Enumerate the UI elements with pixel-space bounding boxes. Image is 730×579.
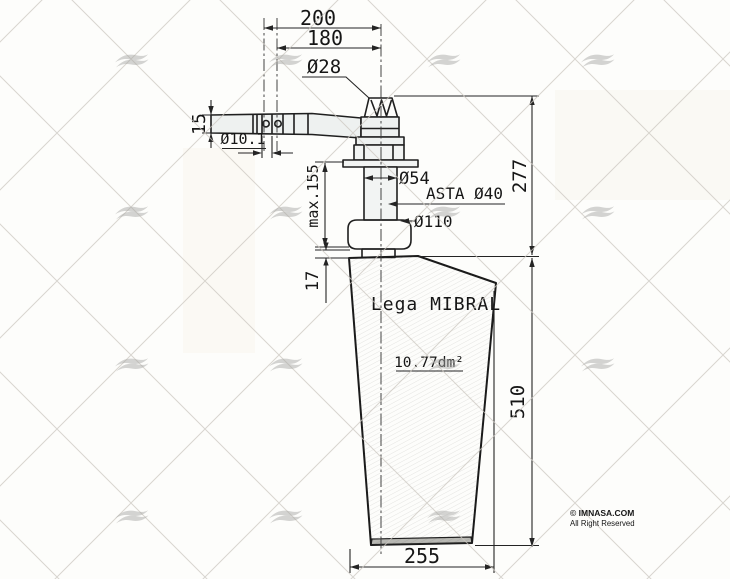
technical-drawing-canvas: 200 180 Ø28 15 Ø10.1 Ø54 ASTA Ø40 Ø110 m… bbox=[0, 0, 730, 579]
watermark-layer bbox=[0, 0, 730, 579]
rights-text: All Right Reserved bbox=[570, 519, 635, 528]
diagonal-hatch-watermark bbox=[0, 0, 730, 579]
copyright-text: © IMNASA.COM bbox=[570, 508, 634, 518]
scanned-technical-drawing-page: 200 180 Ø28 15 Ø10.1 Ø54 ASTA Ø40 Ø110 m… bbox=[0, 0, 730, 579]
